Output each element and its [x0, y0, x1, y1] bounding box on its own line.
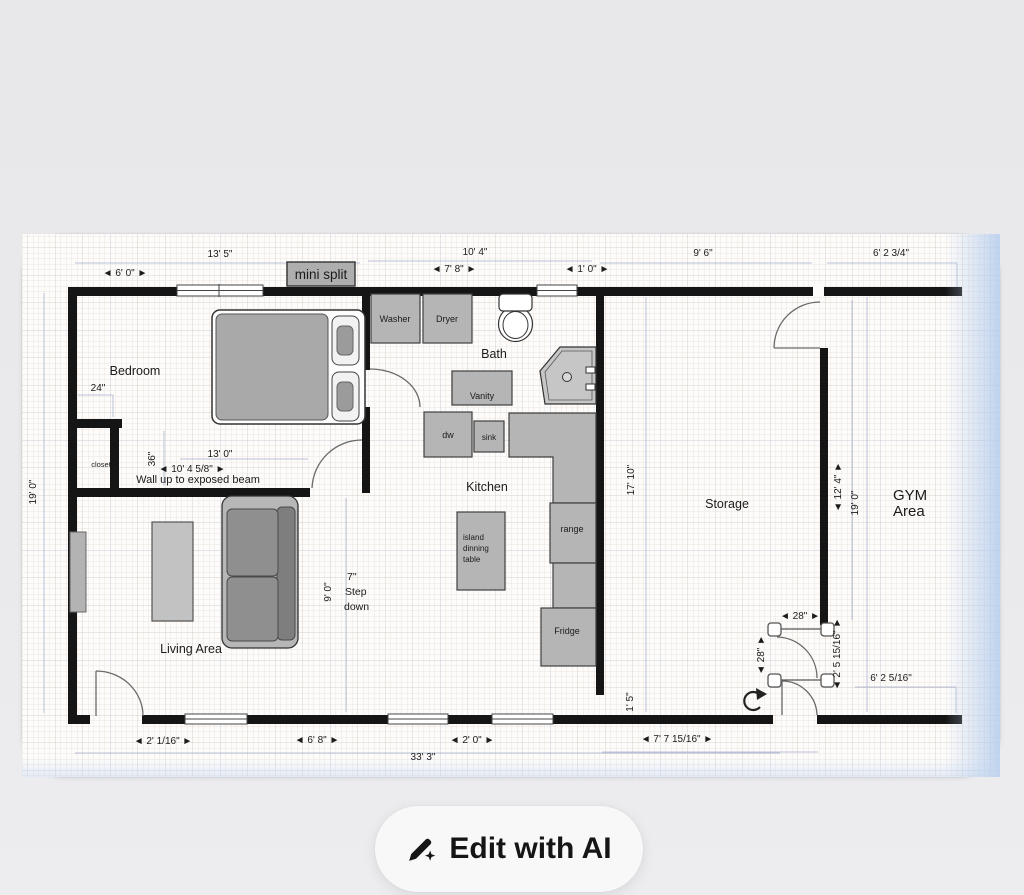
island-label-1: island	[463, 533, 484, 542]
fridge[interactable]: Fridge	[541, 608, 596, 666]
mini-split-unit[interactable]: mini split	[287, 262, 355, 286]
dryer[interactable]: Dryer	[423, 294, 472, 343]
island-dining-table[interactable]: island dinning table	[457, 512, 505, 590]
mini-split-label: mini split	[295, 267, 348, 282]
dim-1-0: ◄ 1' 0" ►	[565, 264, 610, 275]
washer-label: Washer	[380, 314, 411, 324]
dim-9-0: 9' 0"	[323, 582, 334, 602]
dim-28-v: ◄ 28" ►	[756, 635, 767, 675]
vanity-label: Vanity	[470, 391, 495, 401]
window-living-bottom-2[interactable]	[388, 714, 448, 724]
dim-13-0: 13' 0"	[208, 449, 233, 460]
window-bedroom-top[interactable]	[177, 284, 263, 297]
step-note-3: down	[344, 601, 369, 613]
dim-9-6: 9' 6"	[693, 248, 713, 259]
coffee-table[interactable]	[152, 522, 193, 621]
island-label-2: dinning	[463, 544, 489, 553]
room-label-bath: Bath	[481, 347, 507, 361]
room-label-bedroom: Bedroom	[110, 364, 161, 378]
window-living-left[interactable]	[70, 532, 86, 612]
floorplan-svg: Washer Dryer Vanity dw sink range Fridge	[22, 234, 1000, 777]
vanity[interactable]: Vanity	[452, 371, 512, 405]
sofa[interactable]	[222, 496, 298, 648]
room-label-storage: Storage	[705, 497, 749, 511]
dim-6-0: ◄ 6' 0" ►	[103, 268, 148, 279]
dim-28-h: ◄ 28" ►	[780, 611, 820, 622]
floorplan-canvas[interactable]: Washer Dryer Vanity dw sink range Fridge	[22, 234, 1000, 777]
edit-with-ai-button[interactable]: Edit with AI	[375, 806, 643, 892]
dim-19-0-right: 19' 0"	[850, 490, 861, 515]
dim-24: 24"	[91, 383, 106, 394]
pencil-sparkle-icon	[406, 834, 436, 864]
sink[interactable]: sink	[474, 421, 504, 452]
dim-17-10: 17' 10"	[626, 464, 637, 495]
step-note-2: Step	[345, 586, 367, 598]
dim-19-0-left: 19' 0"	[28, 479, 39, 504]
dim-10-4: 10' 4"	[463, 247, 488, 258]
dim-6-8: ◄ 6' 8" ►	[295, 735, 340, 746]
washer[interactable]: Washer	[371, 294, 420, 343]
bed[interactable]	[212, 310, 365, 424]
room-label-closet: closet	[91, 460, 112, 469]
dim-2-1-16: ◄ 2' 1/16" ►	[134, 736, 193, 747]
dw-label: dw	[442, 430, 454, 440]
room-label-kitchen: Kitchen	[466, 480, 508, 494]
dryer-label: Dryer	[436, 314, 458, 324]
dim-7-8: ◄ 7' 8" ►	[432, 264, 477, 275]
dim-6-2-3-4: 6' 2 3/4"	[873, 248, 909, 259]
island-label-3: table	[463, 555, 481, 564]
toilet[interactable]	[499, 294, 533, 342]
window-bath-top[interactable]	[537, 285, 577, 296]
dim-36: 36"	[147, 451, 158, 466]
room-label-gym-2: Area	[893, 503, 925, 520]
dim-2-5-15-16: ◄ 2' 5 15/16" ►	[832, 618, 843, 691]
range-label: range	[560, 524, 583, 534]
step-note-1: 7"	[347, 571, 357, 583]
window-living-bottom-1[interactable]	[185, 714, 247, 724]
dim-10-4-5-8: ◄ 10' 4 5/8" ►	[159, 464, 226, 475]
window-kitchen-bottom[interactable]	[492, 714, 553, 724]
selection-handle[interactable]	[768, 674, 781, 687]
counter-segment[interactable]	[553, 563, 596, 608]
range[interactable]: range	[550, 503, 596, 563]
door-jamb-notch	[813, 284, 824, 296]
selection-handle[interactable]	[768, 623, 781, 636]
edit-button-label: Edit with AI	[449, 832, 611, 866]
dim-13-5: 13' 5"	[208, 249, 233, 260]
fridge-label: Fridge	[554, 626, 580, 636]
dim-6-2-5-16: 6' 2 5/16"	[870, 673, 912, 684]
dim-2-0: ◄ 2' 0" ►	[450, 735, 495, 746]
room-label-gym-1: GYM	[893, 487, 927, 504]
dim-12-4: ◄ 12' 4" ►	[833, 462, 844, 512]
dim-7-7-15-16: ◄ 7' 7 15/16" ►	[641, 734, 714, 745]
room-label-living: Living Area	[160, 642, 222, 656]
wall-note: Wall up to exposed beam	[136, 474, 260, 486]
dishwasher[interactable]: dw	[424, 412, 472, 457]
dim-1-5: 1' 5"	[625, 692, 636, 712]
sink-label: sink	[482, 433, 497, 442]
